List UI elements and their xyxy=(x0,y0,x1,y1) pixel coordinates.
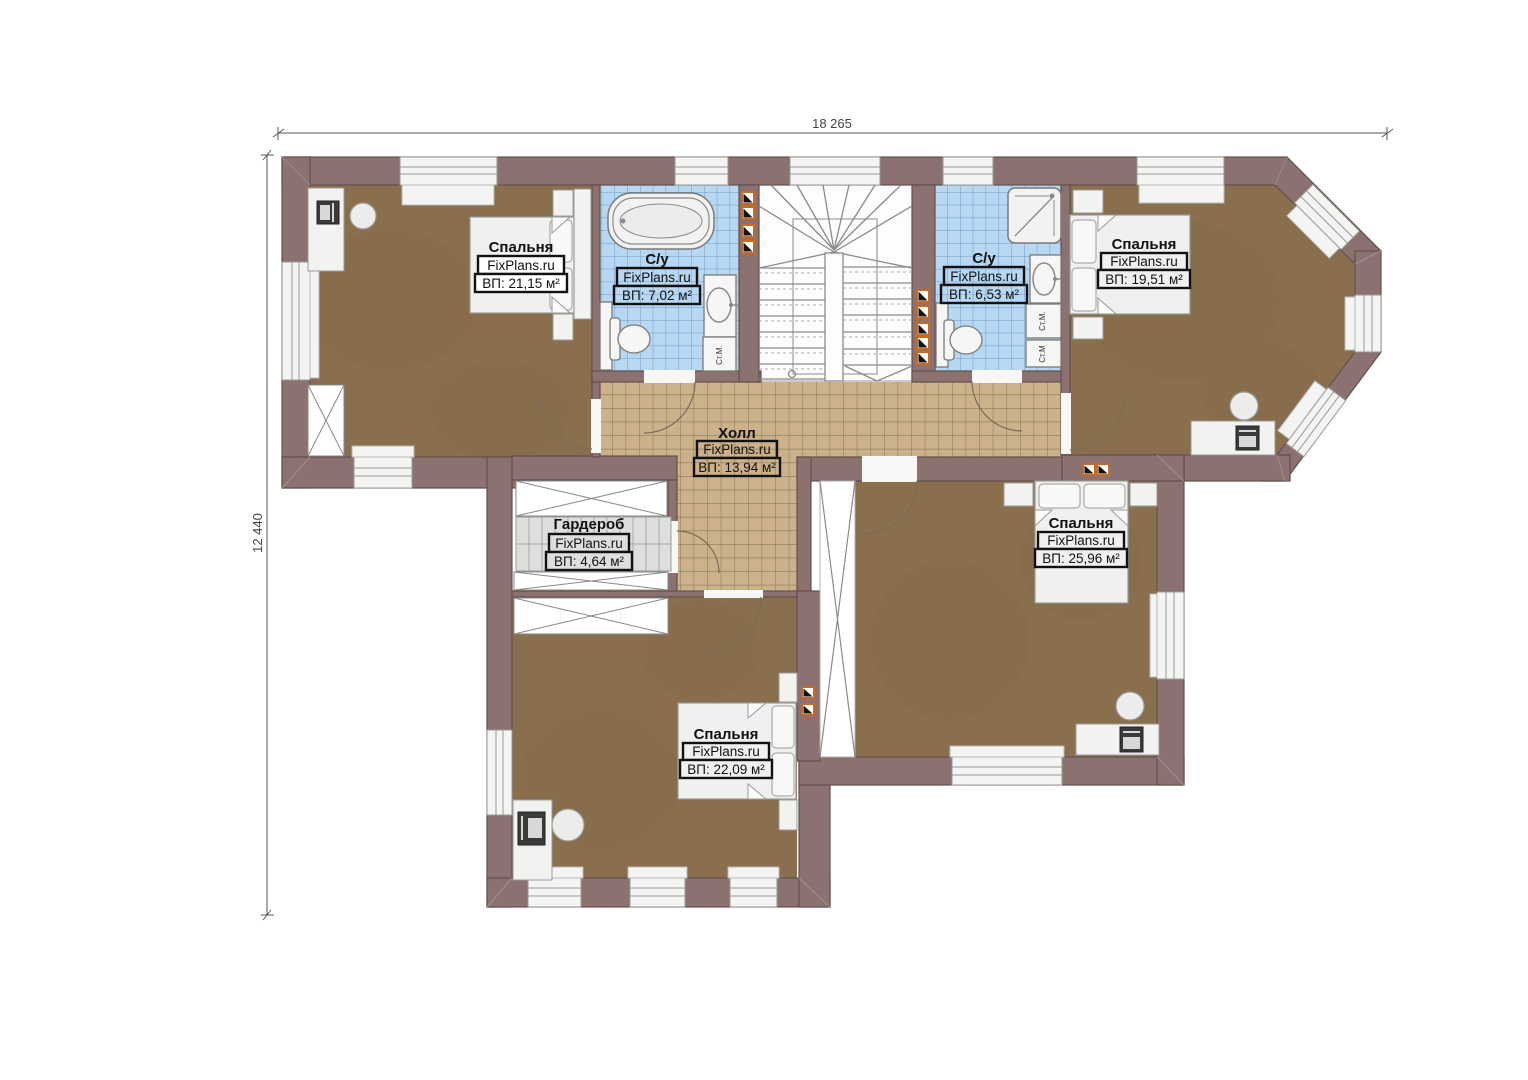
svg-text:FixPlans.ru: FixPlans.ru xyxy=(692,744,760,759)
svg-text:Ст.М.: Ст.М. xyxy=(715,345,724,365)
svg-text:FixPlans.ru: FixPlans.ru xyxy=(950,269,1018,284)
svg-text:FixPlans.ru: FixPlans.ru xyxy=(1047,533,1115,548)
svg-text:С/у: С/у xyxy=(645,251,669,268)
svg-text:FixPlans.ru: FixPlans.ru xyxy=(623,270,691,285)
svg-text:Спальня: Спальня xyxy=(694,726,759,743)
svg-text:Спальня: Спальня xyxy=(489,239,554,256)
svg-text:18 265: 18 265 xyxy=(812,116,852,131)
svg-text:Ст.М: Ст.М xyxy=(1038,345,1047,363)
svg-text:ВП: 25,96 м²: ВП: 25,96 м² xyxy=(1042,551,1120,566)
svg-text:Спальня: Спальня xyxy=(1049,515,1114,532)
svg-text:Ст.М.: Ст.М. xyxy=(1038,311,1047,331)
svg-text:FixPlans.ru: FixPlans.ru xyxy=(487,258,555,273)
svg-text:ВП: 4,64 м²: ВП: 4,64 м² xyxy=(554,554,625,569)
svg-text:Гардероб: Гардероб xyxy=(554,516,625,533)
svg-text:С/у: С/у xyxy=(972,250,996,267)
svg-text:ВП: 21,15 м²: ВП: 21,15 м² xyxy=(482,276,560,291)
svg-text:FixPlans.ru: FixPlans.ru xyxy=(1110,254,1178,269)
svg-text:12 440: 12 440 xyxy=(250,513,265,553)
svg-text:ВП: 19,51 м²: ВП: 19,51 м² xyxy=(1105,272,1183,287)
svg-text:ВП: 6,53 м²: ВП: 6,53 м² xyxy=(949,287,1020,302)
svg-text:FixPlans.ru: FixPlans.ru xyxy=(703,442,771,457)
svg-text:ВП: 22,09 м²: ВП: 22,09 м² xyxy=(687,762,765,777)
svg-text:ВП: 7,02 м²: ВП: 7,02 м² xyxy=(622,288,693,303)
svg-text:Спальня: Спальня xyxy=(1112,236,1177,253)
svg-text:ВП: 13,94 м²: ВП: 13,94 м² xyxy=(698,460,776,475)
svg-text:FixPlans.ru: FixPlans.ru xyxy=(555,536,623,551)
svg-text:Холл: Холл xyxy=(718,425,756,442)
